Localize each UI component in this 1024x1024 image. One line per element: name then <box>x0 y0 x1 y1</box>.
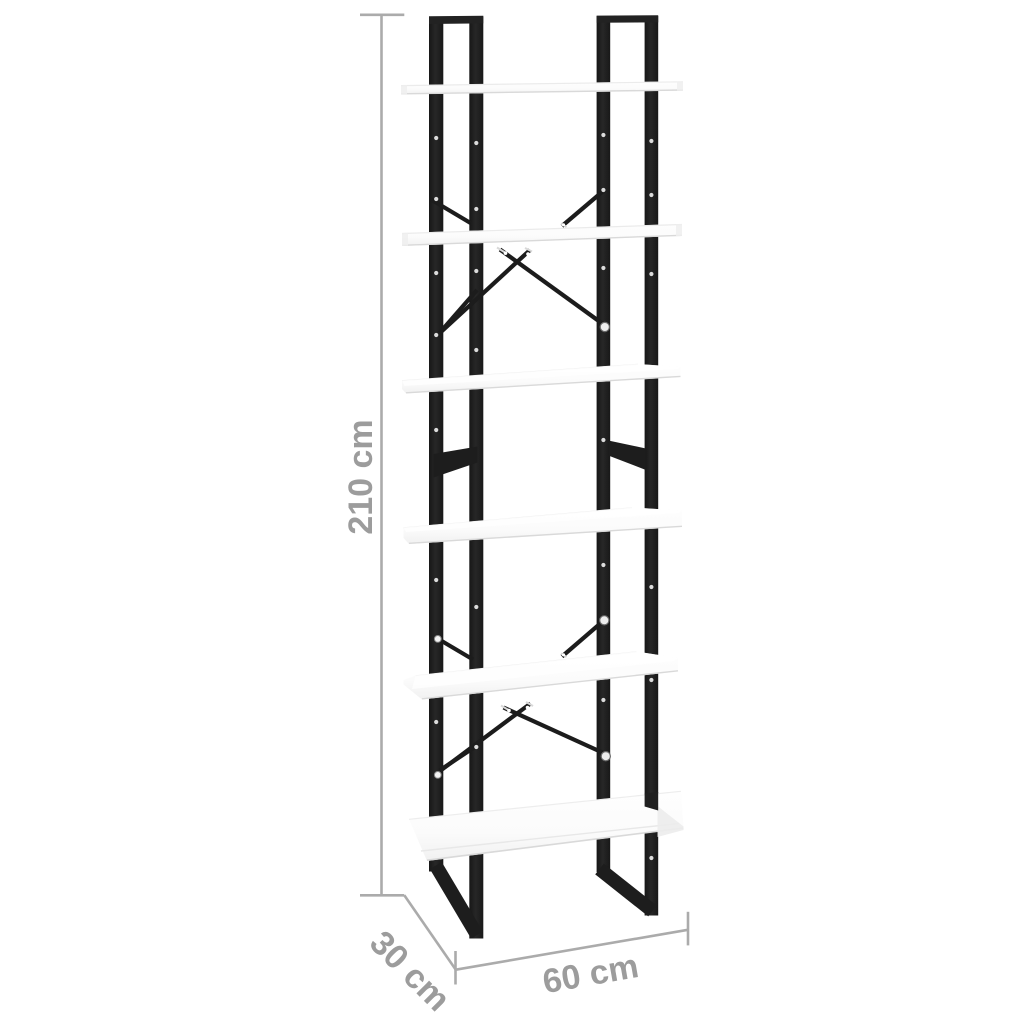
svg-text:210 cm: 210 cm <box>342 419 380 534</box>
